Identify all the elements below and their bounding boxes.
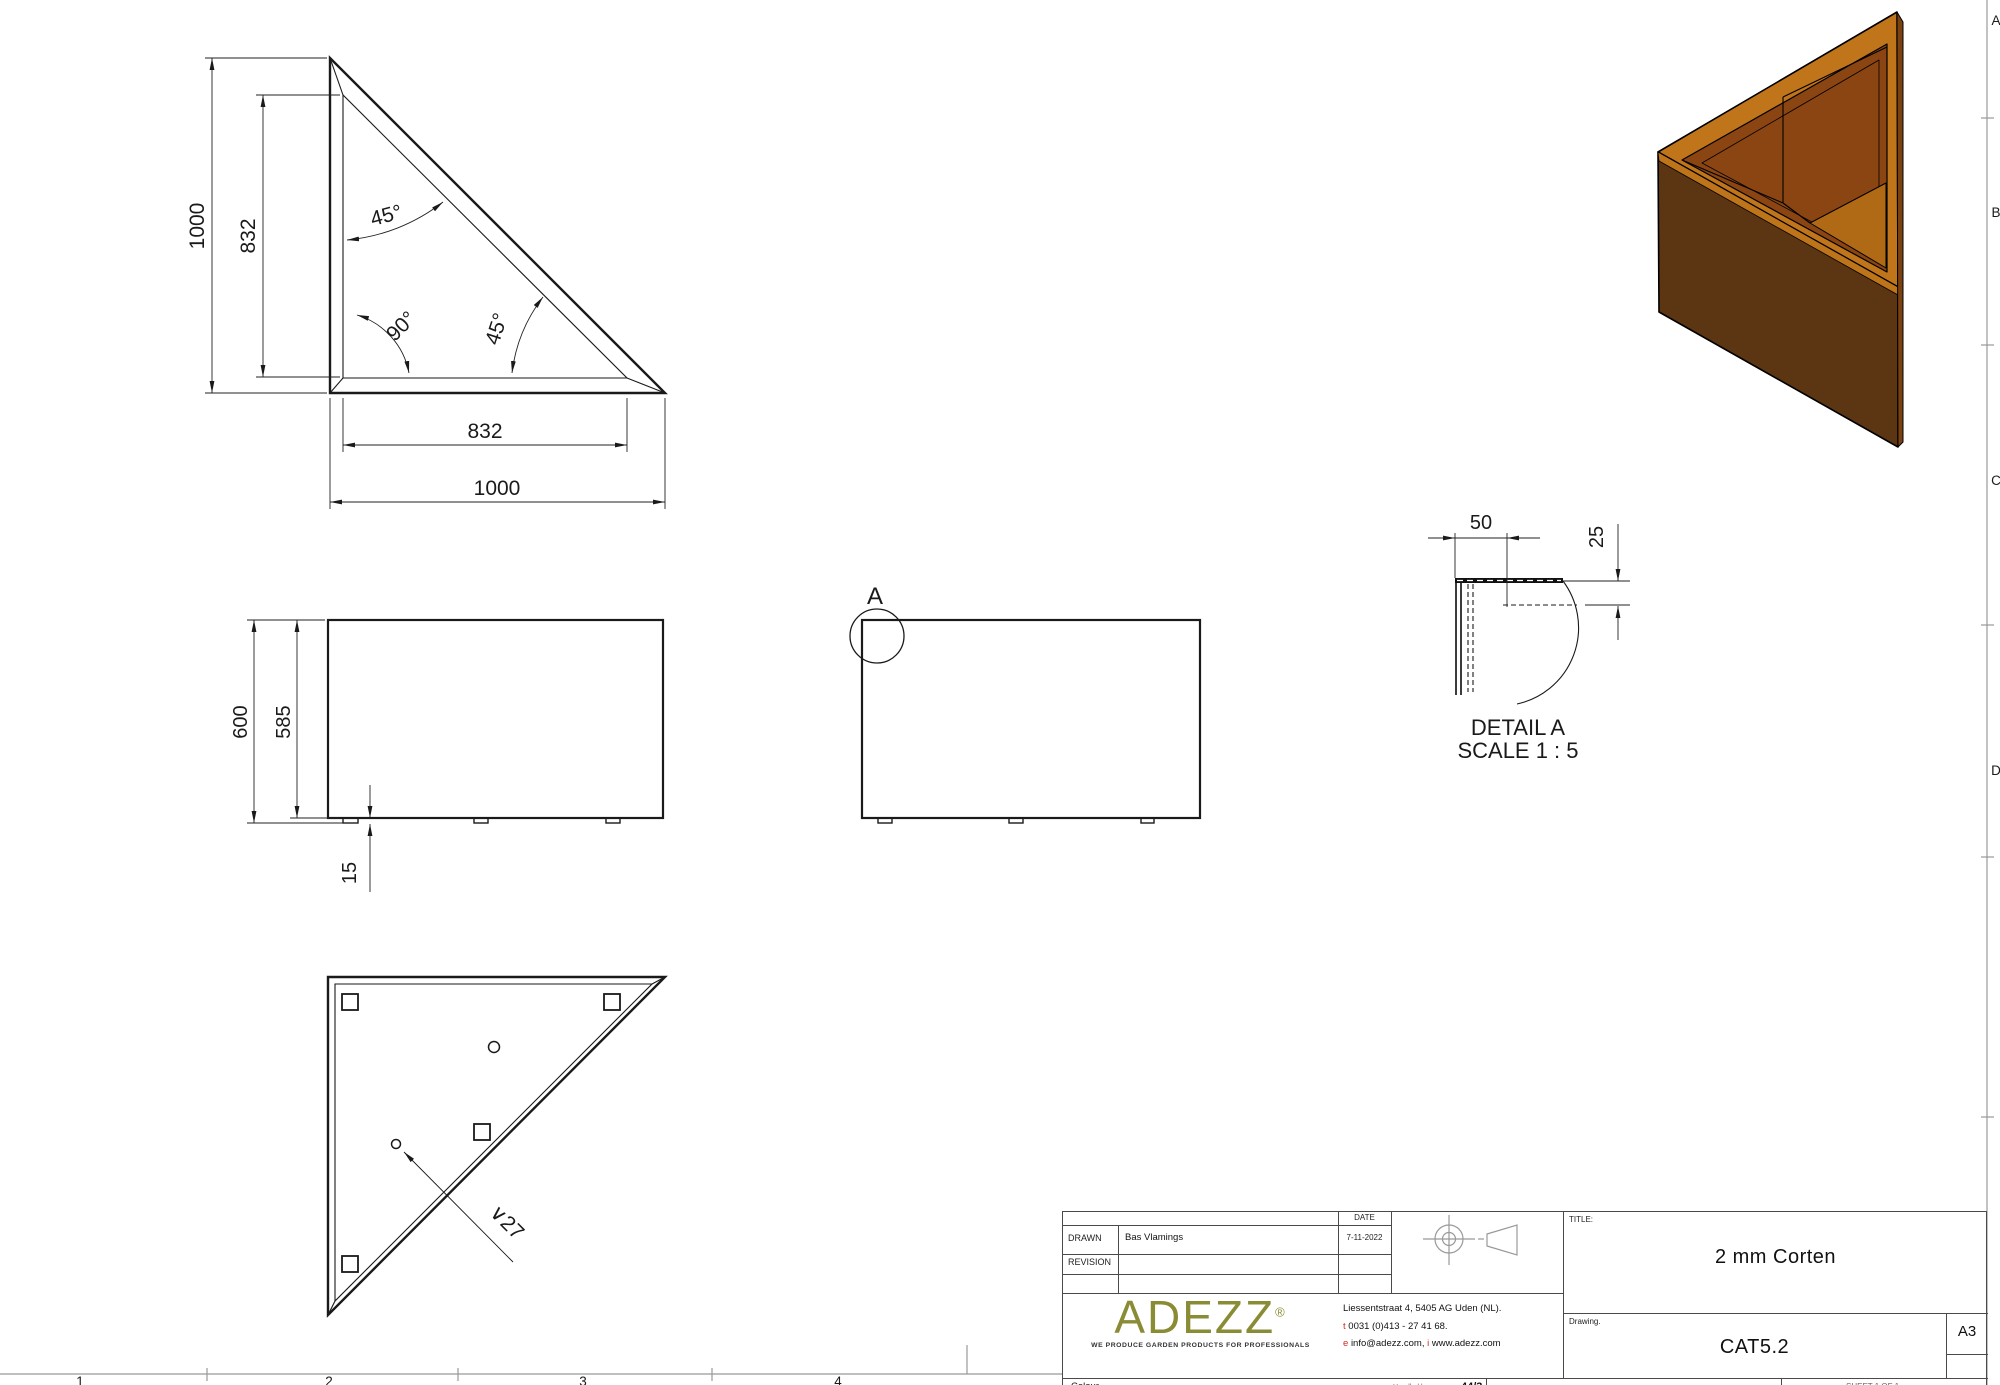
- detail-view: 50 25 DETAIL A SCALE 1 : 5: [1428, 512, 1630, 763]
- dim-height-outer: 600: [230, 705, 252, 738]
- drawing-sheet: 1000 832 832 1000 45° 90° 45° 600 585 15: [0, 0, 2000, 1385]
- date-value: 7-11-2022: [1338, 1234, 1391, 1243]
- email-prefix: e: [1343, 1338, 1348, 1349]
- company-phone: 0031 (0)413 - 27 41 68.: [1348, 1321, 1447, 1332]
- company-address: Liessentstraat 4, 5405 AG Uden (NL).: [1343, 1300, 1501, 1318]
- side-view: A: [850, 583, 1200, 823]
- dim-flange-width: 50: [1470, 512, 1492, 534]
- phone-prefix: t: [1343, 1321, 1346, 1332]
- title-block: DATE DRAWN Bas Vlamings 7-11-2022 REVISI…: [1062, 1211, 1987, 1385]
- angle-corner: 90°: [382, 307, 421, 346]
- iso-right-edge: [1897, 12, 1903, 447]
- zone-col-1: 1: [76, 1374, 84, 1385]
- third-angle-projection-icon: [1391, 1212, 1563, 1293]
- revision-label: REVISION: [1068, 1258, 1111, 1268]
- drain-hole: [392, 1140, 401, 1149]
- title-label: TITLE:: [1569, 1216, 1593, 1225]
- zone-col-3: 3: [579, 1374, 587, 1385]
- company-email: info@adezz.com,: [1351, 1338, 1425, 1349]
- drawing-label: Drawing.: [1569, 1318, 1601, 1327]
- company-web: www.adezz.com: [1432, 1338, 1501, 1349]
- angle-top: 45°: [368, 201, 405, 231]
- detail-title: DETAIL A: [1471, 715, 1565, 740]
- company-logo-block: ADEZZ® WE PRODUCE GARDEN PRODUCTS FOR PR…: [1063, 1293, 1338, 1378]
- front-view-dimensions: [247, 620, 370, 892]
- drawing-number: CAT5.2: [1563, 1336, 1946, 1358]
- company-address-block: Liessentstraat 4, 5405 AG Uden (NL). t 0…: [1343, 1300, 1501, 1353]
- dim-left-inner: 832: [237, 218, 260, 253]
- drawing-title: 2 mm Corten: [1563, 1246, 1988, 1268]
- detail-scale: SCALE 1 : 5: [1457, 738, 1578, 763]
- zone-row-d: D: [1991, 763, 2000, 778]
- top-view-dimensions: [205, 58, 665, 509]
- drawing-canvas: 1000 832 832 1000 45° 90° 45° 600 585 15: [0, 0, 2000, 1385]
- drawn-value: Bas Vlamings: [1125, 1233, 1183, 1243]
- hole-diameter: ∨27: [485, 1201, 529, 1245]
- zone-row-a: A: [1991, 13, 2000, 28]
- drawn-label: DRAWN: [1068, 1234, 1102, 1244]
- iso-view: [1658, 12, 1903, 447]
- dim-height-inner: 585: [273, 705, 295, 738]
- detail-a-marker: A: [867, 583, 883, 610]
- date-label: DATE: [1338, 1214, 1391, 1223]
- angle-hypotenuse: 45°: [481, 310, 513, 347]
- handled-value: 44/3: [1461, 1381, 1482, 1385]
- dim-bottom-outer: 1000: [474, 477, 521, 500]
- zone-row-c: C: [1991, 473, 2000, 488]
- web-prefix: i: [1427, 1338, 1429, 1349]
- registered-mark: ®: [1275, 1305, 1287, 1320]
- paper-size: A3: [1946, 1324, 1988, 1341]
- dim-bottom-inner: 832: [467, 420, 502, 443]
- dim-foot-height: 15: [339, 862, 361, 884]
- zone-col-2: 2: [325, 1374, 333, 1385]
- top-view: 1000 832 832 1000 45° 90° 45°: [186, 58, 665, 509]
- zone-col-4: 4: [834, 1374, 842, 1385]
- dim-left-outer: 1000: [186, 203, 209, 250]
- dim-flange-drop: 25: [1586, 526, 1608, 548]
- adezz-logo: ADEZZ®: [1063, 1293, 1338, 1341]
- company-tagline: WE PRODUCE GARDEN PRODUCTS FOR PROFESSIO…: [1063, 1342, 1338, 1349]
- front-view: 600 585 15: [230, 620, 663, 892]
- bottom-view: ∨27: [328, 977, 665, 1315]
- zone-row-b: B: [1991, 205, 2000, 220]
- detail-a-circle: [850, 609, 904, 663]
